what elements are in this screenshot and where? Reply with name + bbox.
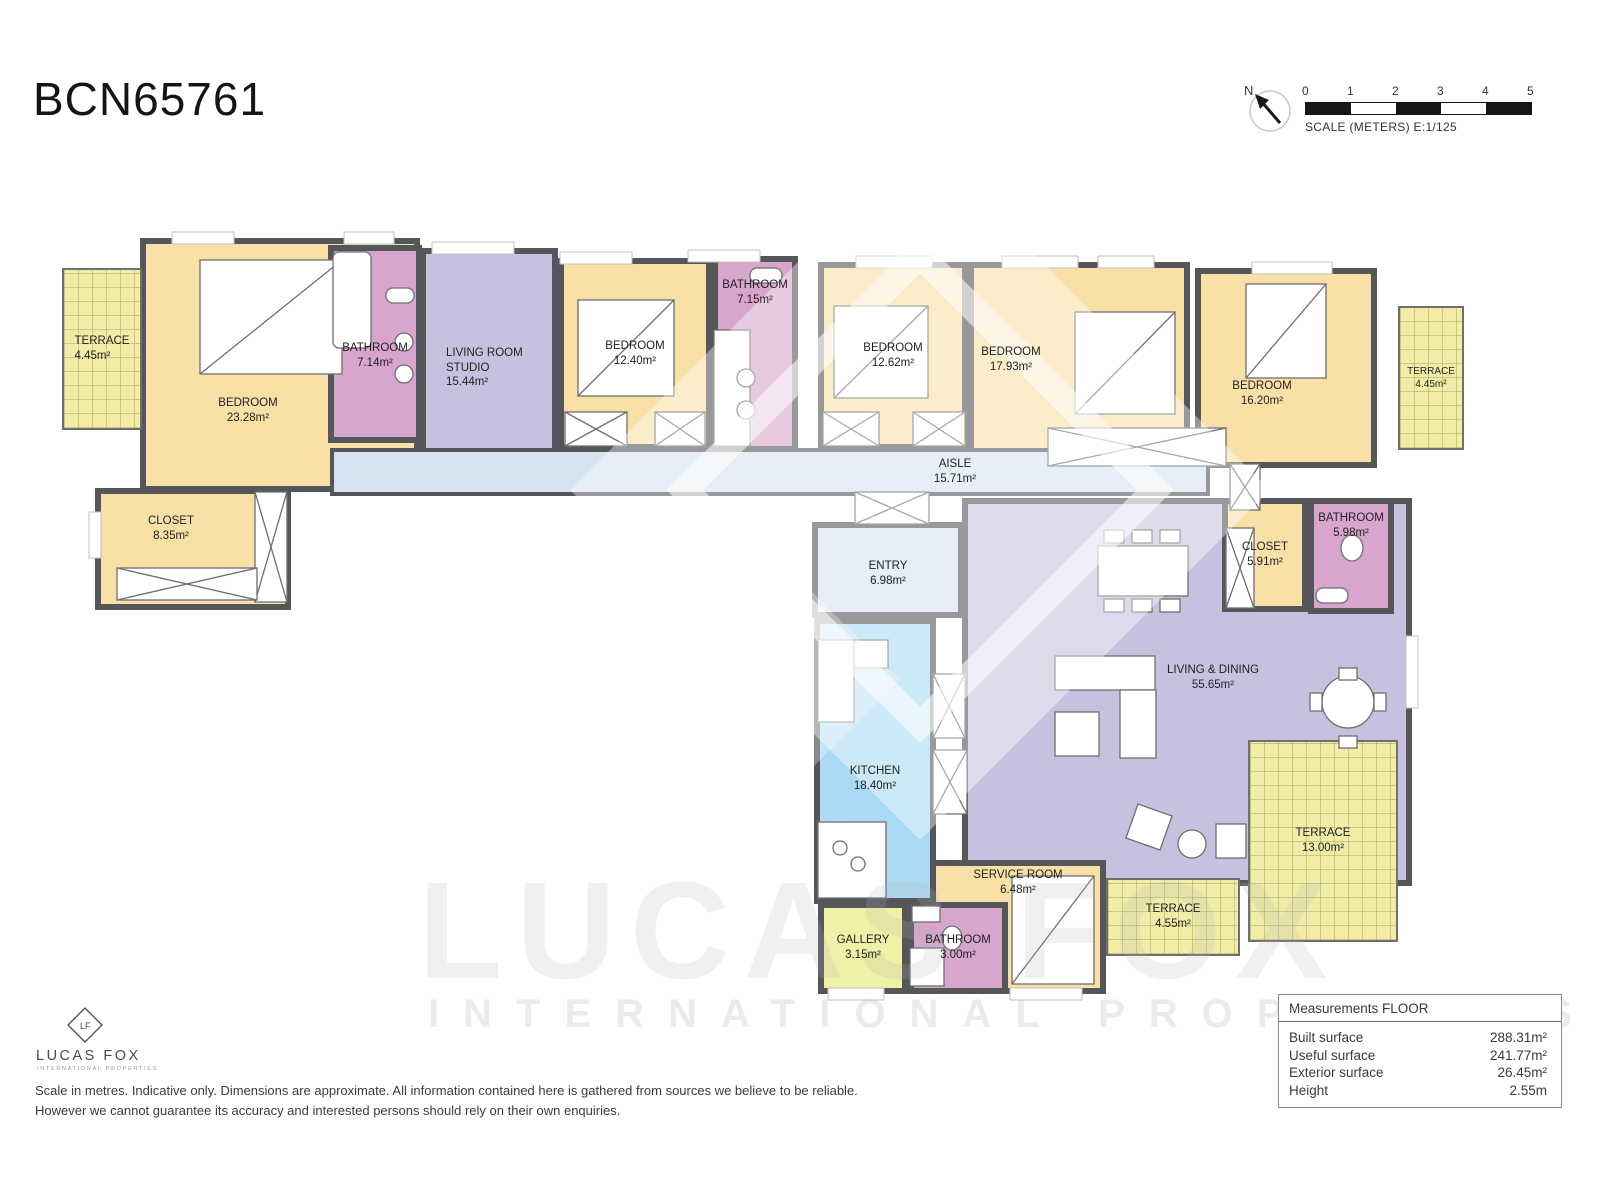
measurement-row: Useful surface241.77m²	[1279, 1047, 1561, 1065]
room-terrace-top-right: TERRACE4.45m²	[1398, 306, 1464, 450]
room-closet-1: CLOSET8.35m²	[95, 488, 291, 610]
room-bedroom-5: BEDROOM16.20m²	[1195, 268, 1377, 468]
measurements-table: Measurements FLOOR Built surface288.31m²…	[1278, 994, 1562, 1108]
scale-ticks: 0 1 2 3 4 5	[1305, 84, 1537, 100]
measurement-row: Built surface288.31m²	[1279, 1029, 1561, 1047]
room-bathroom-1: BATHROOM7.14m²	[328, 245, 422, 443]
lucas-fox-diamond-icon: LF	[62, 1002, 108, 1048]
floorplan-page: BCN65761 N 0 1 2 3 4 5 SCALE (METERS) E:…	[0, 0, 1600, 1200]
measurement-row: Exterior surface26.45m²	[1279, 1064, 1561, 1082]
disclaimer-line-2: However we cannot guarantee its accuracy…	[35, 1101, 858, 1121]
room-bedroom-4: BEDROOM17.93m²	[968, 262, 1190, 458]
measurement-row: Height2.55m	[1279, 1082, 1561, 1100]
room-aisle: AISLE15.71m²	[330, 448, 1210, 496]
disclaimer-line-1: Scale in metres. Indicative only. Dimens…	[35, 1081, 858, 1101]
svg-text:LF: LF	[80, 1021, 91, 1031]
compass: N	[1236, 78, 1300, 142]
room-bedroom-3: BEDROOM12.62m²	[818, 262, 968, 450]
scale-bar: 0 1 2 3 4 5 SCALE (METERS) E:1/125	[1305, 84, 1537, 140]
wardrobe-icon	[933, 674, 965, 738]
wardrobe-icon	[855, 492, 929, 524]
room-bathroom-3: BATHROOM5.98m²	[1308, 498, 1394, 614]
scale-caption: SCALE (METERS) E:1/125	[1305, 120, 1537, 134]
room-entry: ENTRY6.98m²	[812, 522, 964, 618]
page-title: BCN65761	[33, 72, 266, 126]
watermark-brand: LUCAS FOX	[418, 852, 1341, 1011]
north-arrow-icon: N	[1236, 78, 1300, 142]
logo-subtitle-text: INTERNATIONAL PROPERTIES	[37, 1066, 158, 1072]
measurements-header: Measurements FLOOR	[1279, 995, 1561, 1022]
room-bedroom-2: BEDROOM12.40m²	[558, 258, 712, 450]
disclaimer: Scale in metres. Indicative only. Dimens…	[35, 1081, 858, 1121]
svg-text:N: N	[1244, 83, 1253, 98]
room-closet-2: CLOSET5.91m²	[1222, 498, 1308, 612]
room-terrace-top-left: TERRACE4.45m²	[62, 268, 142, 430]
room-bathroom-2: BATHROOM7.15m²	[712, 256, 798, 452]
scale-bar-segments	[1305, 102, 1532, 115]
logo-brand-text: LUCAS FOX	[36, 1048, 141, 1064]
